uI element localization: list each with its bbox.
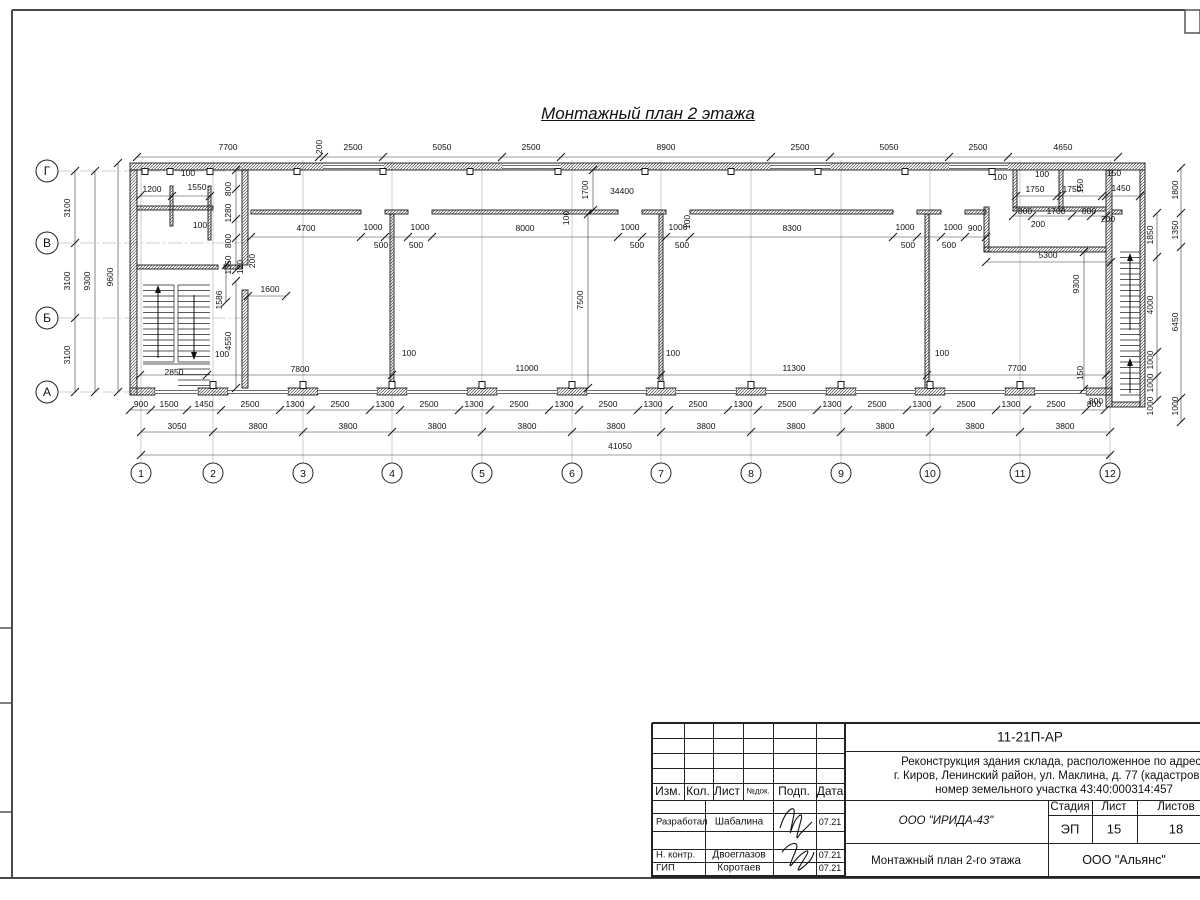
dimension-text: 100 bbox=[935, 348, 949, 358]
dimension-text: 1300 bbox=[1002, 399, 1021, 409]
dimension-text: 500 bbox=[942, 240, 956, 250]
dimension-text: 2500 bbox=[689, 399, 708, 409]
dimension-text: 1350 bbox=[1170, 220, 1180, 239]
dimension-text: 500 bbox=[409, 240, 423, 250]
design-org: ООО "ИРИДА-43" bbox=[899, 815, 994, 827]
dimension-text: 3050 bbox=[168, 421, 187, 431]
dimension-text: 7700 bbox=[219, 142, 238, 152]
dimension-text: 2500 bbox=[778, 399, 797, 409]
column-axis-bubble: 12 bbox=[1100, 463, 1120, 483]
dimension-text: 1300 bbox=[823, 399, 842, 409]
dimension-text: 1586 bbox=[214, 290, 224, 309]
dimension-text: 800 bbox=[1082, 206, 1096, 216]
dimension-text: 2500 bbox=[1047, 399, 1066, 409]
dimension-text: 120 bbox=[235, 260, 245, 274]
dimension-text: 500 bbox=[374, 240, 388, 250]
dimension-text: 500 bbox=[630, 240, 644, 250]
dimension-texts: 7700200250050502500890025005050250046503… bbox=[62, 140, 1180, 451]
dimension-text: 100 bbox=[666, 348, 680, 358]
row-axis-bubble: А bbox=[36, 381, 58, 403]
dimension-text: 5050 bbox=[880, 142, 899, 152]
svg-text:5: 5 bbox=[479, 468, 485, 480]
dimension-text: 8300 bbox=[783, 223, 802, 233]
signature-scribble bbox=[774, 800, 816, 876]
contractor-org: ООО "Альянс" bbox=[1082, 853, 1166, 867]
svg-text:1: 1 bbox=[138, 468, 144, 480]
dimension-text: 1300 bbox=[376, 399, 395, 409]
dimension-text: 2500 bbox=[331, 399, 350, 409]
column-axis-bubble: 11 bbox=[1010, 463, 1030, 483]
role-ncontrol: Н. контр. bbox=[656, 850, 695, 861]
dimension-text: 34400 bbox=[610, 186, 634, 196]
dimension-text: 1350 bbox=[223, 255, 233, 274]
dimension-text: 4650 bbox=[1054, 142, 1073, 152]
col-kol: Кол. bbox=[686, 784, 710, 798]
dimension-text: 1850 bbox=[1145, 225, 1155, 244]
svg-text:10: 10 bbox=[924, 468, 936, 480]
svg-text:2: 2 bbox=[210, 468, 216, 480]
svg-text:В: В bbox=[43, 236, 51, 250]
dimension-text: 800 bbox=[1018, 206, 1032, 216]
dimension-text: 100 bbox=[561, 211, 571, 225]
project-line-2: г. Киров, Ленинский район, ул. Маклина, … bbox=[894, 770, 1200, 782]
dimension-text: 1000 bbox=[1145, 396, 1155, 415]
dimension-text: 1000 bbox=[944, 222, 963, 232]
dimension-text: 100 bbox=[402, 348, 416, 358]
dimension-text: 2500 bbox=[599, 399, 618, 409]
dimension-text: 1000 bbox=[364, 222, 383, 232]
dimension-text: 7700 bbox=[1008, 363, 1027, 373]
dimension-text: 2500 bbox=[868, 399, 887, 409]
dimension-text: 2500 bbox=[957, 399, 976, 409]
dimension-text: 900 bbox=[968, 223, 982, 233]
dimension-text: 9300 bbox=[1071, 274, 1081, 293]
dimension-text: 41050 bbox=[608, 441, 632, 451]
dimension-text: 100 bbox=[181, 168, 195, 178]
dimension-text: 2500 bbox=[420, 399, 439, 409]
dimension-text: 1300 bbox=[913, 399, 932, 409]
dimension-text: 11300 bbox=[782, 363, 805, 373]
dimension-text: 9600 bbox=[105, 267, 115, 286]
walls bbox=[130, 163, 1145, 407]
project-line-3: номер земельного участка 43:40:000314:45… bbox=[935, 784, 1173, 796]
dimension-text: 200 bbox=[1101, 214, 1115, 224]
dimension-text: 3800 bbox=[518, 421, 537, 431]
col-list: Лист bbox=[714, 784, 740, 798]
list-value: 15 bbox=[1107, 822, 1121, 837]
dimension-text: 1000 bbox=[411, 222, 430, 232]
dimension-text: 100 bbox=[193, 220, 207, 230]
column-axis-bubble: 7 bbox=[651, 463, 671, 483]
dimension-text: 4700 bbox=[297, 223, 316, 233]
dimension-text: 150 bbox=[1075, 366, 1085, 380]
dimension-text: 100 bbox=[682, 215, 692, 229]
listov-header: Листов bbox=[1157, 801, 1194, 813]
dimension-text: 1000 bbox=[1170, 396, 1180, 415]
row-axis-bubble: В bbox=[36, 232, 58, 254]
dimension-text: 11000 bbox=[515, 363, 538, 373]
dimension-text: 3800 bbox=[249, 421, 268, 431]
dimension-lines bbox=[71, 153, 1185, 459]
dimension-text: 800 bbox=[1087, 399, 1101, 409]
dimension-text: 1700 bbox=[1047, 206, 1066, 216]
dimension-text: 1550 bbox=[188, 182, 207, 192]
dimension-text: 1000 bbox=[621, 222, 640, 232]
dimension-text: 2500 bbox=[791, 142, 810, 152]
dimension-text: 1000 bbox=[1145, 373, 1155, 392]
dimension-text: 2500 bbox=[241, 399, 260, 409]
dimension-text: 9300 bbox=[82, 271, 92, 290]
dimension-text: 1280 bbox=[223, 203, 233, 222]
dimension-text: 100 bbox=[1035, 169, 1049, 179]
dimension-text: 3800 bbox=[787, 421, 806, 431]
stage-header: Стадия bbox=[1050, 801, 1089, 813]
listov-value: 18 bbox=[1169, 822, 1183, 837]
name-gip: Коротаев bbox=[717, 863, 760, 874]
svg-text:12: 12 bbox=[1104, 468, 1116, 480]
dimension-text: 100 bbox=[215, 349, 229, 359]
dimension-text: 1500 bbox=[160, 399, 179, 409]
date-developer: 07.21 bbox=[819, 817, 842, 827]
dimension-text: 1800 bbox=[1170, 180, 1180, 199]
dimension-text: 150 bbox=[1107, 168, 1121, 178]
dimension-text: 3800 bbox=[428, 421, 447, 431]
dimension-text: 1300 bbox=[644, 399, 663, 409]
column-axis-bubble: 1 bbox=[131, 463, 151, 483]
dimension-text: 7800 bbox=[291, 364, 310, 374]
row-axis-bubble: Г bbox=[36, 160, 58, 182]
dimension-text: 5300 bbox=[1039, 250, 1058, 260]
dimension-text: 100 bbox=[993, 172, 1007, 182]
col-ndok: №док. bbox=[746, 787, 769, 796]
dimension-text: 1750 bbox=[1026, 184, 1045, 194]
dimension-text: 1000 bbox=[1145, 350, 1155, 369]
dimension-text: 8000 bbox=[516, 223, 535, 233]
date-gip: 07.21 bbox=[819, 863, 842, 873]
dimension-text: 3100 bbox=[62, 198, 72, 217]
sheet-name: Монтажный план 2-го этажа bbox=[871, 855, 1021, 867]
dimension-text: 500 bbox=[675, 240, 689, 250]
svg-text:4: 4 bbox=[389, 468, 395, 480]
dimension-text: 3800 bbox=[1056, 421, 1075, 431]
dimension-text: 200 bbox=[1031, 219, 1045, 229]
dimension-text: 3800 bbox=[607, 421, 626, 431]
role-gip: ГИП bbox=[656, 863, 675, 874]
svg-text:9: 9 bbox=[838, 468, 844, 480]
doc-code: 11-21П-АР bbox=[997, 730, 1063, 745]
dimension-text: 1200 bbox=[143, 184, 162, 194]
column-axis-bubble: 9 bbox=[831, 463, 851, 483]
dimension-text: 5050 bbox=[433, 142, 452, 152]
dimension-text: 3100 bbox=[62, 345, 72, 364]
name-ncontrol: Двоеглазов bbox=[712, 850, 765, 861]
dimension-text: 200 bbox=[247, 254, 257, 268]
col-izm: Изм. bbox=[655, 784, 681, 798]
axis-lines bbox=[58, 160, 1110, 463]
project-line-1: Реконструкция здания склада, расположенн… bbox=[901, 756, 1200, 768]
column-axis-bubble: 8 bbox=[741, 463, 761, 483]
svg-text:7: 7 bbox=[658, 468, 664, 480]
name-developer: Шабалина bbox=[715, 817, 763, 828]
dimension-text: 150 bbox=[1075, 179, 1085, 193]
drawing-title: Монтажный план 2 этажа bbox=[541, 104, 755, 124]
dimension-text: 1300 bbox=[555, 399, 574, 409]
column-axis-bubble: 10 bbox=[920, 463, 940, 483]
svg-text:6: 6 bbox=[569, 468, 575, 480]
svg-text:А: А bbox=[43, 385, 51, 399]
col-data: Дата bbox=[817, 784, 844, 798]
dimension-text: 4000 bbox=[1145, 295, 1155, 314]
dimension-text: 1450 bbox=[195, 399, 214, 409]
dimension-text: 1700 bbox=[580, 180, 590, 199]
dimension-text: 3800 bbox=[876, 421, 895, 431]
role-developer: Разработал bbox=[656, 817, 708, 828]
row-axis-bubble: Б bbox=[36, 307, 58, 329]
column-axis-bubble: 3 bbox=[293, 463, 313, 483]
list-header: Лист bbox=[1102, 801, 1127, 813]
dimension-text: 2850 bbox=[165, 367, 184, 377]
column-axis-bubble: 4 bbox=[382, 463, 402, 483]
column-axis-bubble: 2 bbox=[203, 463, 223, 483]
dimension-text: 200 bbox=[314, 140, 324, 154]
svg-text:Б: Б bbox=[43, 311, 51, 325]
dimension-text: 3800 bbox=[339, 421, 358, 431]
dimension-text: 1600 bbox=[261, 284, 280, 294]
dimension-text: 3800 bbox=[697, 421, 716, 431]
dimension-text: 3800 bbox=[966, 421, 985, 431]
dimension-text: 2500 bbox=[510, 399, 529, 409]
svg-text:8: 8 bbox=[748, 468, 754, 480]
stage-value: ЭП bbox=[1061, 822, 1080, 837]
svg-text:11: 11 bbox=[1015, 468, 1026, 480]
svg-text:Г: Г bbox=[44, 164, 51, 178]
svg-text:3: 3 bbox=[300, 468, 306, 480]
dimension-text: 1300 bbox=[465, 399, 484, 409]
dimension-text: 1450 bbox=[1112, 183, 1131, 193]
dimension-text: 1300 bbox=[734, 399, 753, 409]
col-podp: Подп. bbox=[778, 784, 810, 798]
dimension-text: 500 bbox=[901, 240, 915, 250]
column-axis-bubble: 5 bbox=[472, 463, 492, 483]
dimension-text: 1300 bbox=[286, 399, 305, 409]
dimension-text: 4550 bbox=[223, 331, 233, 350]
dimension-text: 900 bbox=[134, 399, 148, 409]
dimension-text: 1000 bbox=[896, 222, 915, 232]
dimension-text: 800 bbox=[223, 234, 233, 248]
drawing-sheet: { "sheet": { "title": "Монтажный план 2 … bbox=[0, 0, 1200, 900]
dimension-text: 8900 bbox=[657, 142, 676, 152]
dimension-text: 3100 bbox=[62, 271, 72, 290]
dimension-text: 2500 bbox=[522, 142, 541, 152]
dimension-text: 2500 bbox=[344, 142, 363, 152]
date-ncontrol: 07.21 bbox=[819, 850, 842, 860]
column-axis-bubble: 6 bbox=[562, 463, 582, 483]
dimension-text: 7500 bbox=[575, 290, 585, 309]
dimension-text: 6450 bbox=[1170, 312, 1180, 331]
dimension-text: 2500 bbox=[969, 142, 988, 152]
dimension-text: 800 bbox=[223, 182, 233, 196]
